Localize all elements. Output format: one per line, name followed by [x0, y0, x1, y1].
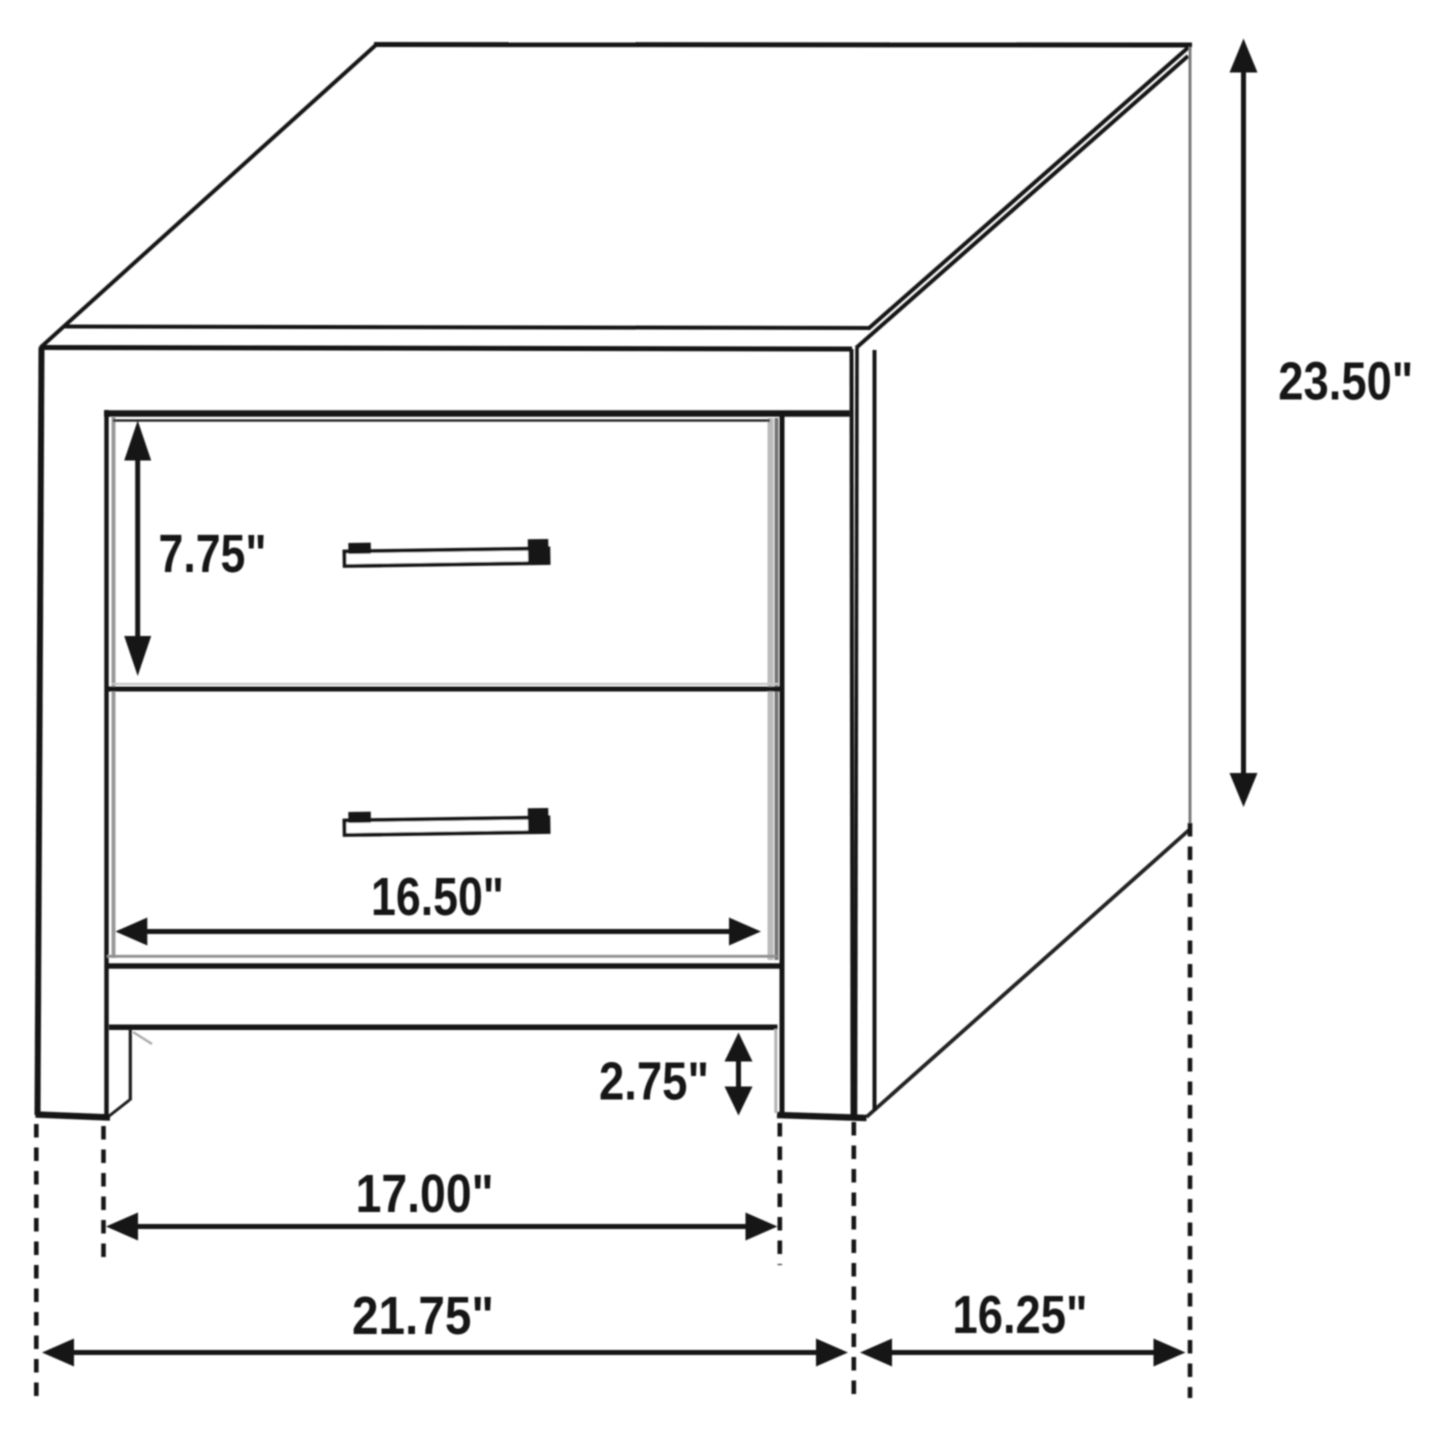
svg-text:21.75": 21.75" — [352, 1287, 494, 1346]
svg-text:16.25": 16.25" — [953, 1286, 1088, 1345]
svg-text:16.50": 16.50" — [371, 868, 504, 927]
svg-text:17.00": 17.00" — [356, 1165, 494, 1224]
svg-text:7.75": 7.75" — [159, 525, 267, 584]
svg-text:2.75": 2.75" — [599, 1053, 709, 1112]
svg-text:23.50": 23.50" — [1278, 353, 1413, 412]
